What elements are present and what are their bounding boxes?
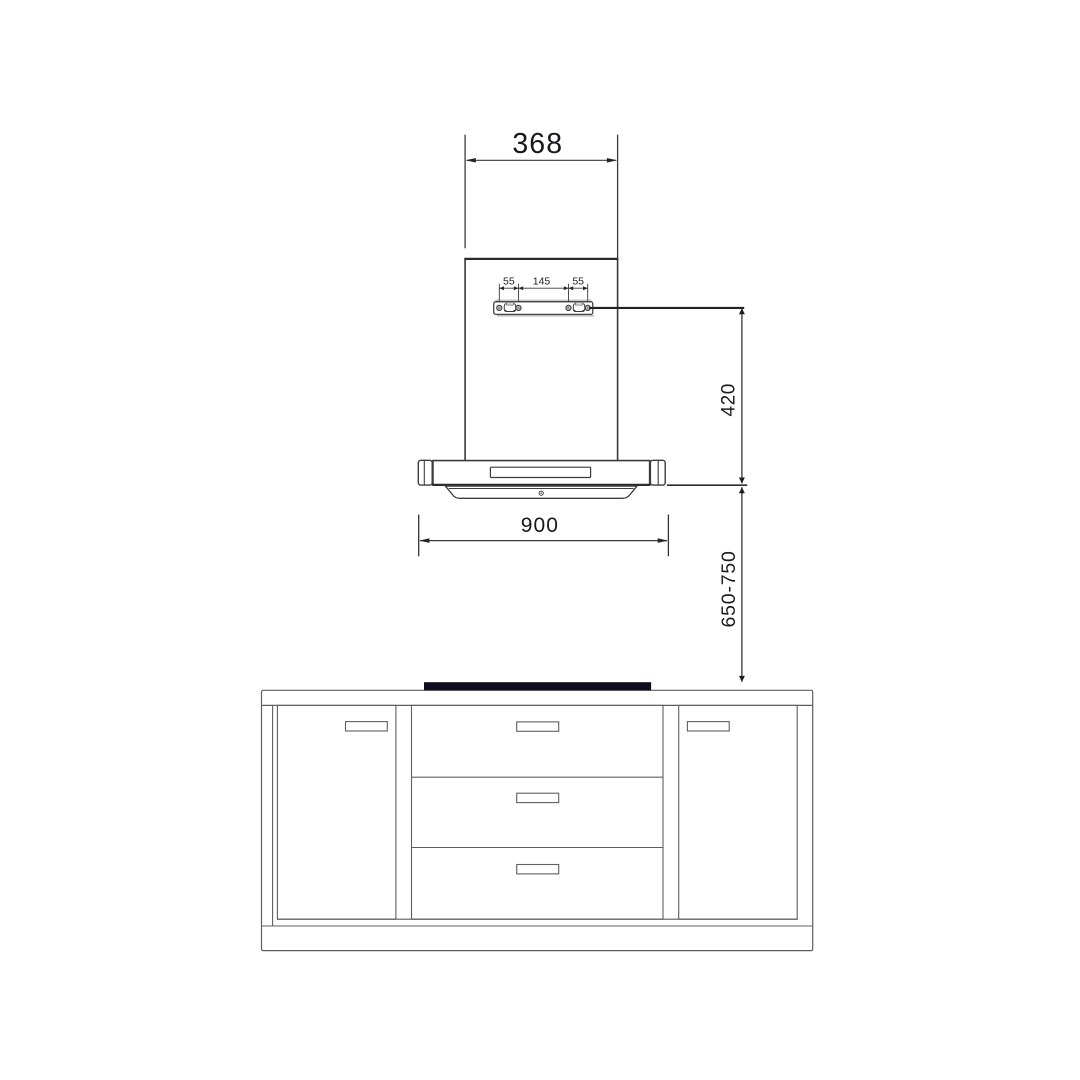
svg-text:55: 55 <box>503 276 515 288</box>
svg-text:650-750: 650-750 <box>718 550 740 627</box>
svg-text:145: 145 <box>533 276 551 288</box>
svg-text:368: 368 <box>512 128 563 160</box>
svg-text:55: 55 <box>572 276 584 288</box>
svg-text:420: 420 <box>719 383 740 417</box>
svg-text:900: 900 <box>521 514 559 537</box>
